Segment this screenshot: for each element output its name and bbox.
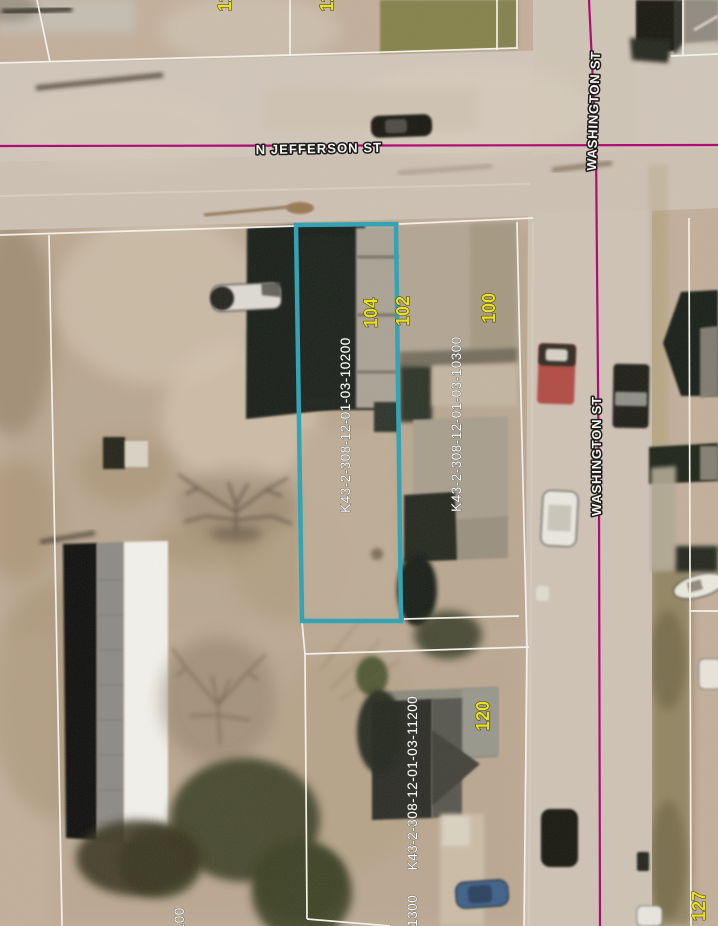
svg-text:120: 120 (473, 701, 493, 731)
svg-text:K43-2-308-12-01-03-11100: K43-2-308-12-01-03-11100 (172, 907, 187, 926)
svg-text:WASHINGTON ST: WASHINGTON ST (589, 396, 604, 516)
svg-text:K43-2-308-12-01-03-11300: K43-2-308-12-01-03-11300 (405, 895, 420, 926)
svg-text:K43-2-308-12-01-03-10200: K43-2-308-12-01-03-10200 (338, 337, 353, 513)
svg-text:100: 100 (479, 293, 499, 323)
svg-text:K43-2-308-12-01-03-11200: K43-2-308-12-01-03-11200 (405, 696, 420, 871)
svg-text:102: 102 (393, 296, 413, 326)
svg-text:115: 115 (215, 0, 235, 12)
svg-text:117: 117 (317, 0, 337, 12)
svg-text:N JEFFERSON ST: N JEFFERSON ST (255, 140, 382, 157)
svg-text:127: 127 (689, 891, 709, 921)
svg-text:K43-2-308-12-01-03-10300: K43-2-308-12-01-03-10300 (449, 336, 464, 512)
svg-text:104: 104 (361, 298, 381, 328)
